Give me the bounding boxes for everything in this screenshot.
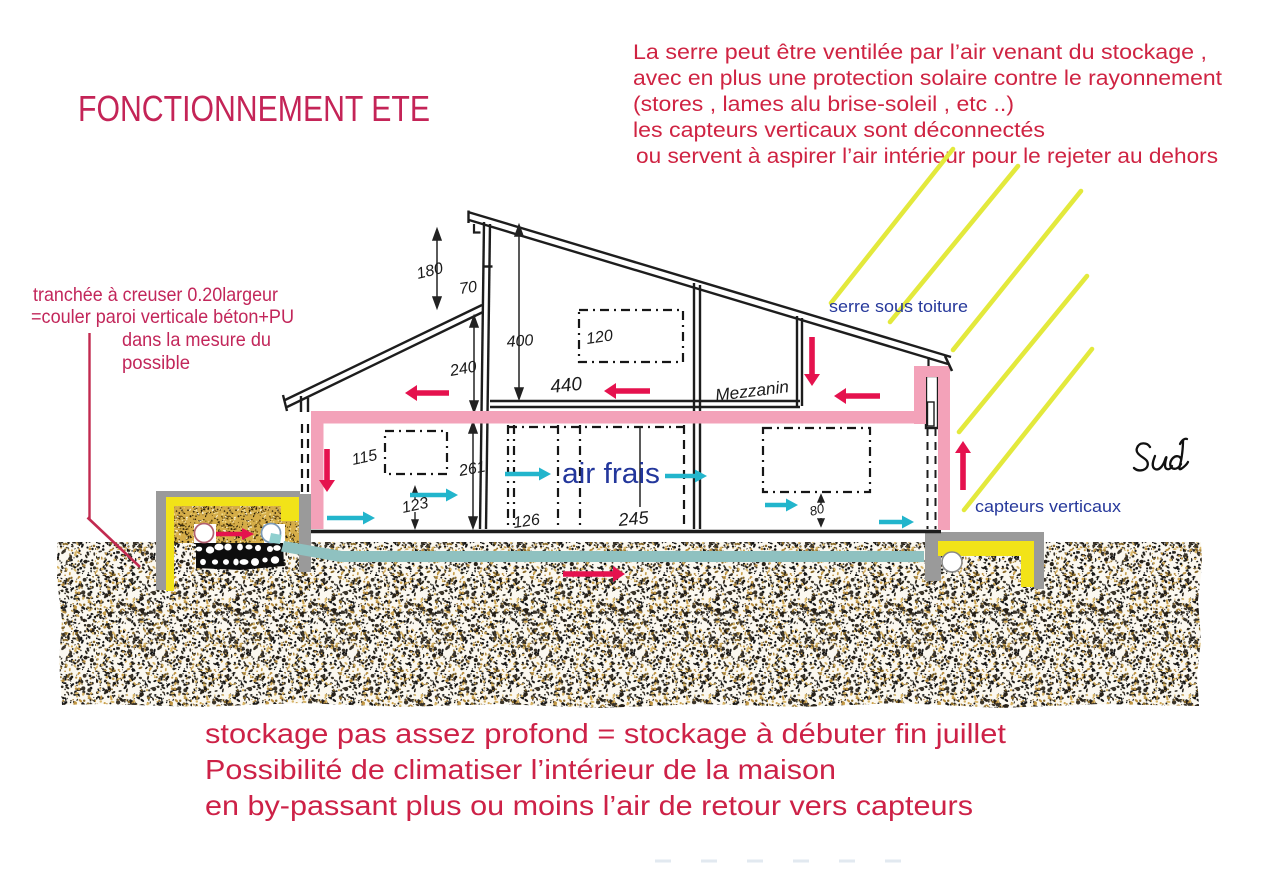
svg-text:ou servent à aspirer l’air int: ou servent à aspirer l’air intérieur pou… [636, 144, 1218, 168]
svg-text:440: 440 [549, 374, 583, 398]
svg-text:capteurs verticaux: capteurs verticaux [975, 498, 1122, 516]
svg-text:245: 245 [617, 507, 651, 530]
svg-text:possible: possible [122, 352, 190, 374]
svg-text:=couler paroi verticale béton+: =couler paroi verticale béton+PU [31, 306, 294, 328]
svg-text:70: 70 [458, 279, 478, 298]
svg-text:air frais: air frais [562, 458, 660, 490]
svg-text:avec en plus une protection so: avec en plus une protection solaire cont… [633, 66, 1222, 90]
svg-text:tranchée à creuser 0.20largeur: tranchée à creuser 0.20largeur [33, 284, 278, 306]
svg-text:(stores , lames alu brise-sole: (stores , lames alu brise-soleil , etc .… [633, 92, 1014, 116]
svg-text:en by-passant plus ou moins l’: en by-passant plus ou moins l’air de ret… [205, 790, 973, 821]
svg-text:400: 400 [506, 332, 534, 351]
svg-text:stockage pas assez profond =: stockage pas assez profond = stockage à … [205, 718, 1006, 749]
svg-text:FONCTIONNEMENT ETE: FONCTIONNEMENT ETE [78, 88, 430, 129]
svg-text:Possibilité de climatiser l’in: Possibilité de climatiser l’intérieur de… [205, 754, 836, 785]
svg-text:dans la mesure du: dans la mesure du [122, 329, 271, 351]
svg-text:La serre peut être ventilée p: La serre peut être ventilée par l’air ve… [633, 40, 1207, 64]
svg-text:les capteurs verticaux sont d: les capteurs verticaux sont déconnectés [633, 118, 1045, 142]
svg-text:serre sous toiture: serre sous toiture [829, 298, 968, 316]
